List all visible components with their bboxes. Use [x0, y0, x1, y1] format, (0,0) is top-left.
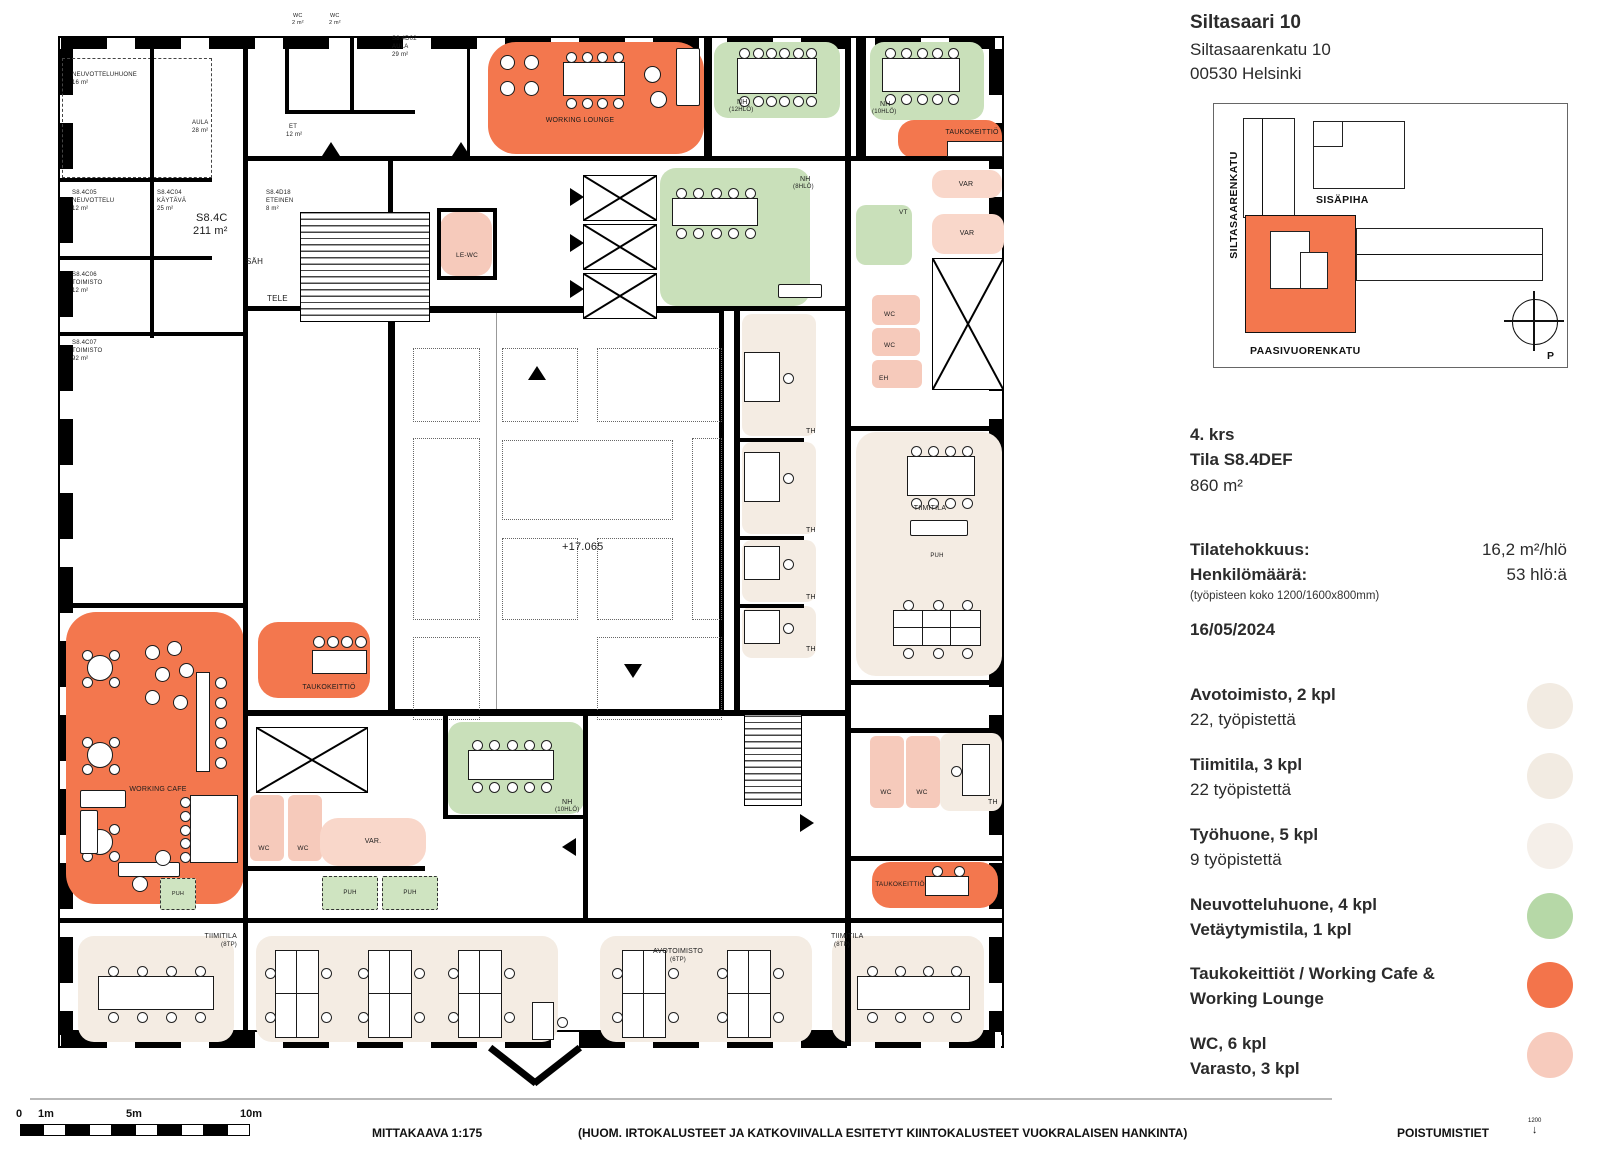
chair-icon: [613, 98, 624, 109]
plan-label: TH: [988, 799, 998, 806]
legend-color-swatch: [1527, 962, 1573, 1008]
interior-wall: [243, 38, 248, 1046]
plan-label: PUH: [343, 890, 356, 896]
table-icon: [563, 62, 625, 96]
chair-icon: [867, 1012, 878, 1023]
desk-pod-icon: [275, 950, 319, 1038]
chair-icon: [773, 968, 784, 979]
plan-label: 8 m²: [266, 206, 279, 212]
interior-wall: [704, 38, 712, 158]
stairs-icon: [744, 714, 802, 806]
plan-label: 92 m²: [72, 356, 88, 362]
chair-icon: [903, 600, 914, 611]
chair-icon: [954, 866, 965, 877]
armchair-icon: [145, 690, 160, 705]
exits-label: POISTUMISTIET: [1397, 1126, 1489, 1140]
scale-bar-segment: [112, 1124, 135, 1136]
kitchen-counter-icon: [947, 141, 1003, 157]
interior-wall: [60, 256, 212, 260]
courtyard-dashed-fixture: [413, 637, 480, 720]
chair-icon: [109, 650, 120, 661]
compass-label: P: [1547, 350, 1554, 362]
chair-icon: [448, 968, 459, 979]
plan-label: TH: [806, 594, 816, 601]
interior-wall: [845, 680, 1002, 685]
plan-label: AULA: [392, 44, 408, 50]
chair-icon: [313, 636, 325, 648]
chair-icon: [355, 636, 367, 648]
plan-label: WC: [916, 790, 927, 797]
legend-item-title: Avotoimisto, 2 kpl: [1190, 685, 1336, 705]
chair-icon: [195, 966, 206, 977]
table-icon: [468, 750, 554, 780]
plan-label: TOIMISTO: [72, 348, 102, 354]
chair-icon: [137, 1012, 148, 1023]
address-line-2: 00530 Helsinki: [1190, 64, 1302, 84]
courtyard-dashed-fixture: [413, 438, 480, 620]
legend-item-title: Neuvotteluhuone, 4 kpl: [1190, 895, 1377, 915]
chair-icon: [693, 228, 704, 239]
chair-icon: [137, 966, 148, 977]
room-wc-r2: [872, 328, 920, 356]
plan-label: 12 m²: [286, 132, 302, 138]
chair-icon: [676, 228, 687, 239]
chair-icon: [541, 782, 552, 793]
building-title: Siltasaari 10: [1190, 12, 1301, 34]
courtyard-label: SISÄPIHA: [1316, 194, 1369, 206]
legend-item-subtitle: Varasto, 3 kpl: [1190, 1059, 1300, 1079]
chair-icon: [612, 968, 623, 979]
chair-icon: [928, 446, 939, 457]
interior-wall: [845, 38, 851, 1046]
table-icon: [98, 976, 214, 1010]
armchair-icon: [500, 55, 515, 70]
plan-label: VAR: [960, 230, 974, 237]
key-plan-east-wing-line: [1357, 254, 1542, 255]
workstation-note: (työpisteen koko 1200/1600x800mm): [1190, 590, 1379, 602]
table-icon: [907, 456, 975, 496]
armchair-icon: [524, 55, 539, 70]
plan-label: WC: [330, 14, 340, 20]
scale-bar-segment: [66, 1124, 89, 1136]
room-eh-r: [872, 360, 922, 388]
armchair-icon: [650, 91, 667, 108]
chair-icon: [195, 1012, 206, 1023]
chair-icon: [783, 559, 794, 570]
chair-icon: [472, 740, 483, 751]
interior-wall: [243, 866, 425, 871]
chair-icon: [597, 52, 608, 63]
efficiency-label: Tilatehokkuus:: [1190, 540, 1310, 560]
chair-icon: [793, 96, 804, 107]
plan-label: NEUVOTTELU: [72, 198, 114, 204]
exit-arrow-icon: [570, 280, 584, 298]
desk-pod-icon: [727, 950, 771, 1038]
chair-icon: [180, 852, 191, 863]
scale-tick-label: 0: [16, 1108, 22, 1120]
plan-label: (12HLÖ): [729, 107, 753, 113]
interior-wall: [845, 728, 1002, 733]
armchair-icon: [155, 850, 171, 866]
chair-icon: [728, 228, 739, 239]
plan-label: VAR: [959, 181, 973, 188]
chair-icon: [923, 966, 934, 977]
efficiency-value: 16,2 m²/hlö: [1452, 540, 1567, 560]
legend-item-title: WC, 6 kpl: [1190, 1034, 1267, 1054]
plan-label: (6TP): [670, 957, 686, 963]
plan-label: 25 m²: [157, 206, 173, 212]
key-plan-core-2: [1300, 252, 1328, 289]
armchair-icon: [173, 695, 188, 710]
interior-wall: [437, 208, 497, 212]
plan-label: WC: [297, 846, 308, 853]
space-id: Tila S8.4DEF: [1190, 450, 1293, 470]
plan-label: TIIMITILA: [914, 505, 947, 512]
plan-label: (8TP): [221, 942, 237, 948]
chair-icon: [867, 966, 878, 977]
interior-wall: [350, 38, 354, 112]
floorplan-sheet: NEUVOTTELUHUONE16 m²S8.4C05NEUVOTTELU12 …: [0, 0, 1600, 1175]
sheet-bottom-line: [30, 1098, 1332, 1100]
chair-icon: [766, 48, 777, 59]
chair-icon: [951, 766, 962, 777]
chair-icon: [783, 373, 794, 384]
armchair-icon: [132, 876, 148, 892]
plan-label: TAUKOKEITTIÖ: [875, 882, 925, 889]
room-le-wc: [440, 212, 492, 276]
plan-label: WC: [884, 343, 895, 350]
interior-wall: [437, 208, 441, 280]
chair-icon: [728, 188, 739, 199]
chair-icon: [951, 1012, 962, 1023]
chair-icon: [215, 717, 227, 729]
chair-icon: [911, 446, 922, 457]
chair-icon: [321, 1012, 332, 1023]
chair-icon: [766, 96, 777, 107]
street-label-left: SILTASAARENKATU: [1228, 151, 1240, 259]
interior-wall: [285, 110, 415, 114]
sofa-icon: [80, 790, 126, 808]
plan-label: AVOTOIMISTO: [653, 948, 703, 955]
interior-wall: [493, 208, 497, 280]
chair-icon: [745, 228, 756, 239]
desk-icon: [744, 610, 780, 644]
chair-icon: [557, 1017, 568, 1028]
scale-bar-segment: [135, 1124, 158, 1136]
chair-icon: [582, 52, 593, 63]
chair-icon: [668, 968, 679, 979]
chair-icon: [109, 824, 120, 835]
chair-icon: [901, 94, 912, 105]
stairs-icon: [300, 212, 430, 322]
chair-icon: [541, 740, 552, 751]
plan-label: (8HLÖ): [793, 184, 814, 190]
chair-icon: [693, 188, 704, 199]
chair-icon: [414, 1012, 425, 1023]
plan-label: (8TP): [834, 942, 850, 948]
plan-label: 211 m²: [193, 226, 228, 238]
bay-window-right-edge: [532, 1045, 582, 1086]
table-icon: [190, 795, 238, 863]
plan-label: KÄYTÄVÄ: [157, 198, 186, 204]
chair-icon: [753, 48, 764, 59]
table-icon: [925, 876, 969, 896]
plan-label: WC: [884, 312, 895, 319]
address-line-1: Siltasaarenkatu 10: [1190, 40, 1331, 60]
plan-label: (10HLÖ): [872, 109, 896, 115]
table-icon: [672, 198, 758, 226]
plan-label: 12 m²: [72, 288, 88, 294]
chair-icon: [612, 1012, 623, 1023]
plan-label: +17.065: [562, 542, 603, 554]
compass-icon: [1512, 299, 1558, 345]
chair-icon: [215, 697, 227, 709]
plan-label: NH: [737, 99, 748, 106]
chair-icon: [933, 648, 944, 659]
chair-icon: [504, 968, 515, 979]
scale-bar-segment: [89, 1124, 112, 1136]
chair-icon: [932, 48, 943, 59]
chair-icon: [806, 48, 817, 59]
plan-label: TOIMISTO: [72, 280, 102, 286]
chair-icon: [806, 96, 817, 107]
chair-icon: [885, 48, 896, 59]
interior-wall: [467, 38, 470, 158]
plan-label: ET: [289, 124, 297, 130]
desk-pod-icon: [368, 950, 412, 1038]
armchair-icon: [644, 66, 661, 83]
plan-label: NH: [562, 799, 573, 806]
chair-icon: [779, 96, 790, 107]
chair-icon: [414, 968, 425, 979]
plan-label: LE-WC: [456, 253, 478, 260]
plan-label: S8.4C05: [72, 190, 97, 196]
chair-icon: [489, 740, 500, 751]
chair-icon: [962, 648, 973, 659]
shaft-icon: [932, 258, 1004, 390]
plan-label: ETEINEN: [266, 198, 293, 204]
chair-icon: [903, 648, 914, 659]
legend-color-swatch: [1527, 1032, 1573, 1078]
kitchen-counter-icon: [312, 650, 367, 674]
chair-icon: [108, 966, 119, 977]
interior-wall: [736, 536, 804, 540]
chair-icon: [180, 811, 191, 822]
scale-tick-label: 5m: [126, 1108, 142, 1120]
interior-wall: [845, 856, 1002, 861]
sofa-icon: [778, 284, 822, 298]
space-area: 860 m²: [1190, 476, 1243, 496]
plan-label: PUH: [403, 890, 416, 896]
scale-tick-label: 1m: [38, 1108, 54, 1120]
desk-icon: [532, 1002, 554, 1040]
room-wc-br2: [906, 736, 940, 808]
chair-icon: [180, 797, 191, 808]
desk-pod-icon: [458, 950, 502, 1038]
interior-wall: [437, 276, 497, 280]
exit-arrow-icon: [800, 814, 814, 832]
armchair-icon: [155, 667, 170, 682]
headcount-label: Henkilömäärä:: [1190, 565, 1307, 585]
plan-label: WORKING LOUNGE: [546, 117, 615, 124]
chair-icon: [597, 98, 608, 109]
plan-label: VT: [899, 210, 908, 217]
chair-icon: [948, 48, 959, 59]
scale-bar-segment: [158, 1124, 181, 1136]
chair-icon: [166, 966, 177, 977]
room-wc-br1: [870, 736, 904, 808]
chair-icon: [962, 498, 973, 509]
plan-label: VAR.: [365, 838, 382, 845]
desk-icon: [962, 744, 990, 796]
chair-icon: [613, 52, 624, 63]
plan-label: WC: [258, 846, 269, 853]
interior-wall: [845, 426, 1002, 431]
chair-icon: [321, 968, 332, 979]
key-plan-wing-divider: [1262, 119, 1263, 217]
chair-icon: [82, 764, 93, 775]
chair-icon: [711, 188, 722, 199]
plan-label: NH: [800, 176, 811, 183]
footer-note: (HUOM. IRTOKALUSTEET JA KATKOVIIVALLA ES…: [578, 1126, 1187, 1140]
interior-wall: [443, 815, 588, 819]
chair-icon: [566, 52, 577, 63]
chair-icon: [358, 968, 369, 979]
floor-number: 4. krs: [1190, 425, 1234, 445]
interior-wall: [60, 603, 245, 608]
plan-label: 29 m²: [392, 52, 408, 58]
chair-icon: [327, 636, 339, 648]
chair-icon: [717, 1012, 728, 1023]
plan-label: 2 m²: [329, 21, 341, 27]
plan-label: S8.4C: [196, 213, 228, 225]
plan-label: 12 m²: [72, 206, 88, 212]
legend-item-subtitle: 9 työpistettä: [1190, 850, 1282, 870]
exit-arrow-icon: [452, 142, 470, 156]
courtyard-dashed-fixture: [597, 538, 673, 620]
chair-icon: [180, 838, 191, 849]
exit-arrow-icon: [570, 188, 584, 206]
courtyard-center-line: [496, 313, 497, 709]
chair-icon: [215, 737, 227, 749]
chair-icon: [923, 1012, 934, 1023]
chair-icon: [932, 866, 943, 877]
interior-wall: [243, 156, 1002, 161]
legend-color-swatch: [1527, 753, 1573, 799]
chair-icon: [951, 966, 962, 977]
plan-label: WC: [880, 790, 891, 797]
interior-wall: [736, 438, 804, 442]
chair-icon: [783, 473, 794, 484]
chair-icon: [265, 1012, 276, 1023]
chair-icon: [676, 188, 687, 199]
table-icon: [737, 58, 817, 94]
plan-label: 16 m²: [72, 80, 88, 86]
plan-label: TELE: [267, 295, 288, 303]
chair-icon: [779, 48, 790, 59]
street-label-bottom: PAASIVUORENKATU: [1250, 345, 1361, 357]
legend-item-title: Taukokeittiöt / Working Cafe &: [1190, 964, 1435, 984]
armchair-icon: [179, 663, 194, 678]
plan-label: S8.4D18: [266, 190, 291, 196]
exit-arrow-icon: [562, 838, 576, 856]
desk-bank-icon: [893, 610, 981, 646]
chair-icon: [358, 1012, 369, 1023]
exit-arrow-icon: ↓: [1532, 1124, 1538, 1136]
legend-item-subtitle: 22, työpistettä: [1190, 710, 1296, 730]
interior-wall: [60, 178, 212, 182]
plan-label: TIIMITILA: [204, 933, 237, 940]
plan-label: NEUVOTTELUHUONE: [72, 72, 137, 78]
chair-icon: [265, 968, 276, 979]
chair-icon: [215, 757, 227, 769]
chair-icon: [507, 740, 518, 751]
table-icon: [857, 976, 970, 1010]
plan-label: AULA: [192, 120, 208, 126]
chair-icon: [524, 740, 535, 751]
legend-item-subtitle: Working Lounge: [1190, 989, 1324, 1009]
interior-wall: [856, 38, 866, 160]
plan-label: TIIMITILA: [831, 933, 864, 940]
plan-label: (10HLÖ): [555, 807, 579, 813]
sofa-icon: [676, 48, 700, 106]
exit-symbol: 1200 ↓: [1528, 1118, 1541, 1136]
chair-icon: [962, 446, 973, 457]
headcount-value: 53 hlö:ä: [1452, 565, 1567, 585]
interior-wall: [60, 918, 1002, 923]
interior-wall: [150, 38, 154, 338]
key-plan-north-wing: [1243, 118, 1295, 218]
chair-icon: [668, 1012, 679, 1023]
chair-icon: [180, 825, 191, 836]
room-working-lounge: [488, 42, 704, 154]
chair-icon: [948, 94, 959, 105]
plan-label: PUH: [930, 553, 943, 559]
plan-date: 16/05/2024: [1190, 620, 1275, 640]
scale-tick-label: 10m: [240, 1108, 262, 1120]
scale-bar-segment: [43, 1124, 66, 1136]
courtyard-dashed-fixture: [502, 440, 673, 520]
plan-label: 28 m²: [192, 128, 208, 134]
legend-item-subtitle: Vetäytymistila, 1 kpl: [1190, 920, 1352, 940]
legend-item-subtitle: 22 työpistettä: [1190, 780, 1291, 800]
interior-wall: [443, 712, 448, 817]
sofa-icon: [910, 520, 968, 536]
chair-icon: [945, 446, 956, 457]
plan-label: TAUKOKEITTIÖ: [302, 684, 355, 691]
interior-wall: [285, 38, 289, 112]
plan-label: SÄH: [246, 258, 263, 266]
shaft-icon: [583, 224, 657, 270]
chair-icon: [109, 737, 120, 748]
armchair-icon: [145, 645, 160, 660]
chair-icon: [717, 968, 728, 979]
exit-arrow-icon: [528, 366, 546, 380]
plan-label: TH: [806, 527, 816, 534]
plan-label: S8.4D02: [392, 36, 417, 42]
chair-icon: [448, 1012, 459, 1023]
armchair-icon: [167, 641, 182, 656]
chair-icon: [745, 188, 756, 199]
legend-item-title: Työhuone, 5 kpl: [1190, 825, 1318, 845]
armchair-icon: [500, 81, 515, 96]
chair-icon: [933, 600, 944, 611]
legend-color-swatch: [1527, 893, 1573, 939]
plan-label: S8.4C07: [72, 340, 97, 346]
chair-icon: [917, 94, 928, 105]
plan-label: TH: [806, 646, 816, 653]
chair-icon: [753, 96, 764, 107]
